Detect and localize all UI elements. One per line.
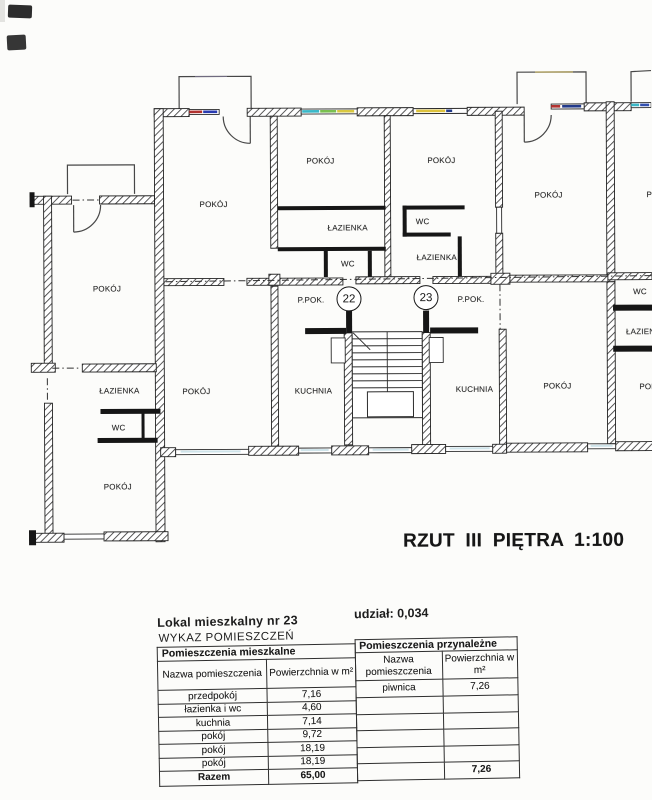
wykaz-heading: WYKAZ POMIESZCZEŃ [158,630,294,644]
column-header: Nazwa pomieszczenia [355,651,442,681]
room-name [356,696,443,714]
room-label: POKÓJ [182,387,210,396]
apartment-info-block: Lokal mieszkalny nr 23 udział: 0,034 WYK… [150,603,525,800]
room-label: ŁAZIENKA [626,327,652,336]
lokal-heading: Lokal mieszkalny nr 23 [157,613,298,630]
room-label: ŁAZIENKA [99,386,139,395]
unit-number-circle: 22 [336,286,361,311]
udzial-heading: udział: 0,034 [354,606,429,621]
room-label: WC [416,217,430,226]
room-label: P.POK. [298,296,325,305]
room-label: KUCHNIA [295,386,332,395]
room-label: POKÓJ [543,381,571,390]
room-label: POKÓJ [200,200,228,209]
total-label: Razem [159,769,268,786]
exterior-walls [30,102,652,543]
room-label: POKÓJ [306,156,334,165]
total-label [357,762,444,781]
room-area [443,728,518,746]
room-name [356,713,443,731]
floor-plan-drawing [0,0,652,601]
room-label: KUCHNIA [456,385,493,394]
column-header: Nazwa pomieszczenia [157,659,267,690]
room-label: P.POK. [458,295,485,304]
room-label: POKÓJ [639,382,652,391]
room-label: ŁAZIENKA [417,253,457,262]
scanned-floor-plan-page: POKÓJ ŁAZIENKA WC POKÓJ POKÓJ POKÓJ POKÓ… [0,0,652,800]
room-area [443,695,518,713]
door-arcs [73,115,551,232]
total-value: 65,00 [268,768,357,785]
room-label: WC [112,423,126,432]
room-area [444,744,519,762]
windows [62,103,652,540]
room-label: POKÓJ [427,156,455,165]
room-name: piwnica [355,679,442,698]
plan-title: RZUT III PIĘTRA 1:100 [403,530,624,553]
floor-plan: POKÓJ ŁAZIENKA WC POKÓJ POKÓJ POKÓJ POKÓ… [0,0,652,601]
room-label: POKÓJ [646,190,652,199]
residential-rooms-table: Pomieszczenia mieszkalne Nazwa pomieszcz… [157,643,359,787]
room-name [357,746,444,764]
ancillary-rooms-table: Pomieszczenia przynależne Nazwa pomieszc… [354,636,520,781]
room-label: ŁAZIENKA [328,223,368,232]
column-header: Powierzchnia w m² [442,650,518,679]
room-label: WC [341,259,355,268]
unit-number-circle: 23 [413,285,438,310]
rooms-tables: Pomieszczenia mieszkalne Nazwa pomieszcz… [157,640,520,787]
room-label: POKÓJ [534,190,562,199]
room-label: POKÓJ [93,284,121,293]
total-value: 7,26 [444,761,519,779]
column-header: Powierzchnia w m² [266,658,356,689]
room-name [356,729,443,747]
room-area [443,711,518,729]
room-label: WC [633,287,647,296]
room-area: 7,26 [442,678,517,696]
room-label: POKÓJ [104,482,132,491]
